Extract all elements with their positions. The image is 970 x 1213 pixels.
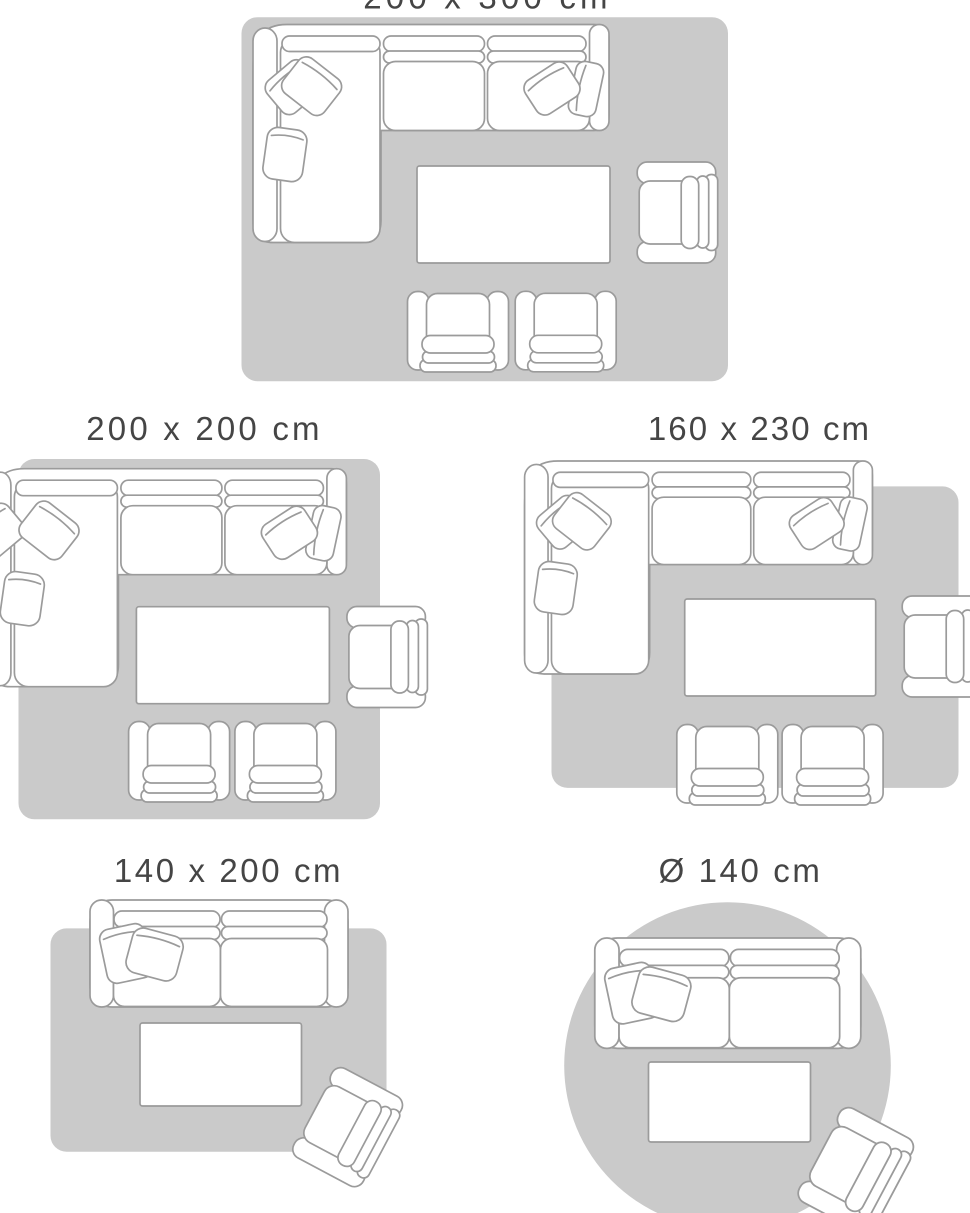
svg-text:200 x 300 cm: 200 x 300 cm [363, 0, 612, 16]
svg-text:200 x 200 cm: 200 x 200 cm [86, 410, 323, 447]
svg-text:Ø 140 cm: Ø 140 cm [659, 852, 823, 889]
svg-text:160 x 230 cm: 160 x 230 cm [648, 410, 871, 447]
svg-text:140 x 200 cm: 140 x 200 cm [114, 852, 343, 889]
